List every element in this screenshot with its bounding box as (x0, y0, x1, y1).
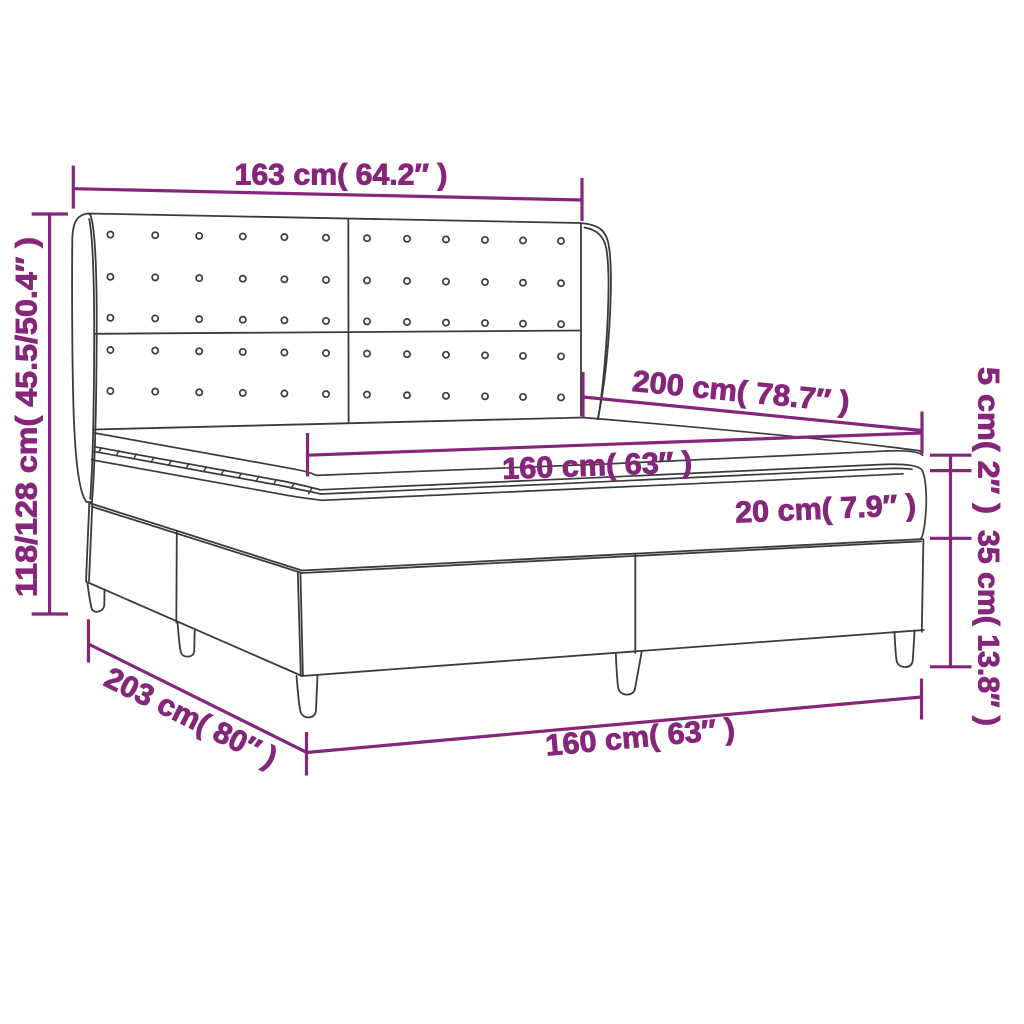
svg-text:35 cm( 13.8″ ): 35 cm( 13.8″ ) (972, 530, 1005, 726)
svg-text:163 cm( 64.2″ ): 163 cm( 64.2″ ) (235, 159, 448, 192)
svg-text:5 cm( 2″ ): 5 cm( 2″ ) (972, 367, 1005, 514)
svg-text:160 cm( 63″ ): 160 cm( 63″ ) (502, 446, 693, 486)
svg-text:118/128 cm( 45.5/50.4″ ): 118/128 cm( 45.5/50.4″ ) (11, 237, 44, 597)
